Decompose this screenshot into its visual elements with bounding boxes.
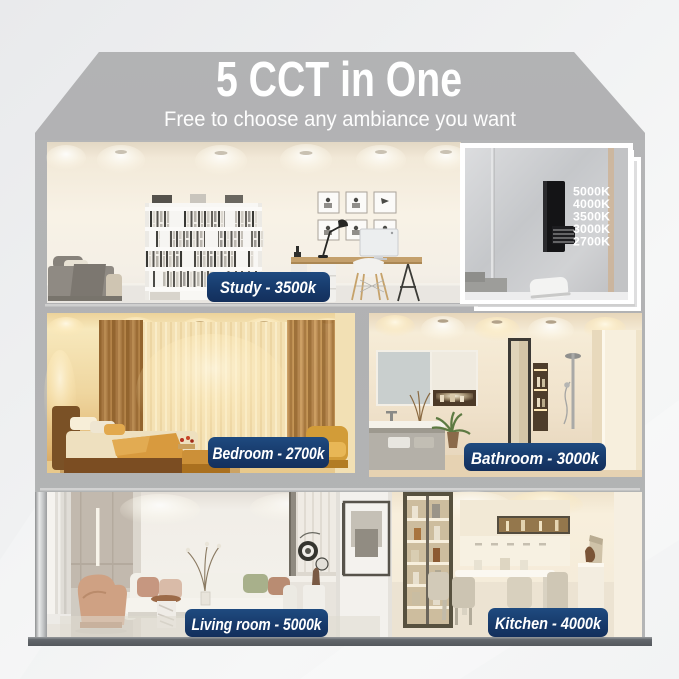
svg-text:Bedroom - 2700k: Bedroom - 2700k [213, 444, 326, 463]
svg-text:Study - 3500k: Study - 3500k [220, 278, 317, 297]
svg-text:Free to choose any ambiance yo: Free to choose any ambiance you want [164, 107, 516, 131]
svg-text:5 CCT in One: 5 CCT in One [216, 53, 462, 107]
svg-text:2700K: 2700K [573, 235, 610, 249]
svg-text:Bathroom - 3000k: Bathroom - 3000k [471, 449, 600, 468]
svg-text:Living room - 5000k: Living room - 5000k [192, 615, 323, 634]
svg-text:Kitchen - 4000k: Kitchen - 4000k [495, 614, 602, 633]
